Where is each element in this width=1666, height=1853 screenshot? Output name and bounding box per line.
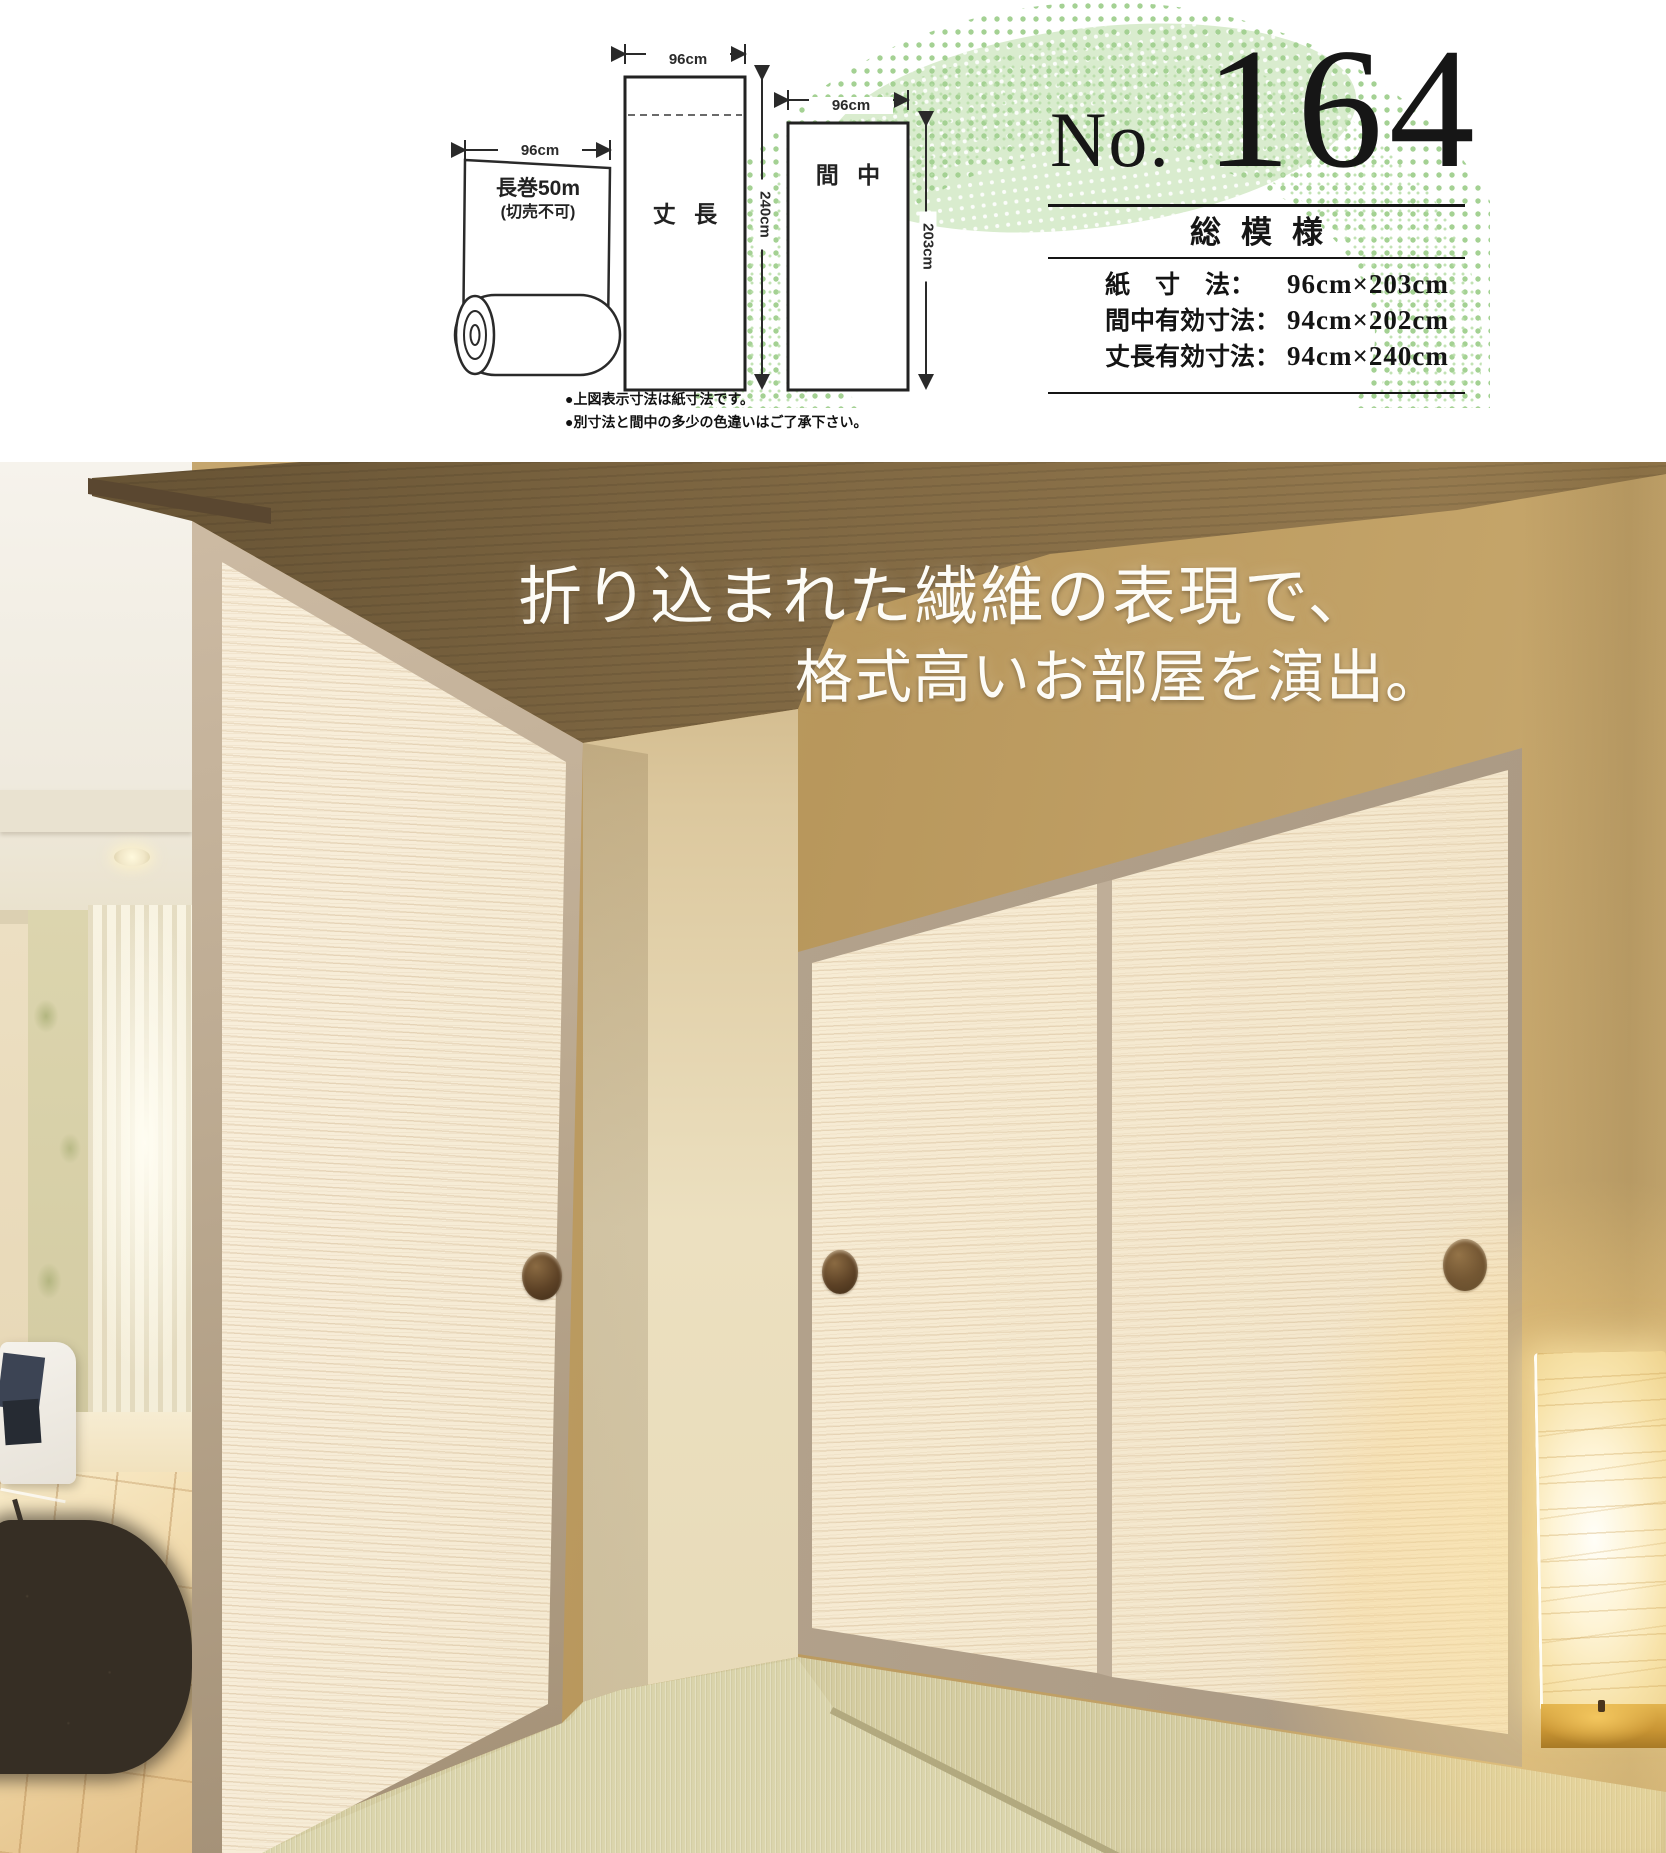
roll-caption: 長巻50m (切売不可) bbox=[468, 176, 608, 223]
diagram-note-2: ●別寸法と間中の多少の色違いはご了承下さい。 bbox=[565, 411, 867, 434]
takecho-width-label: 96cm bbox=[646, 51, 730, 68]
product-number-block: No.164 bbox=[1050, 14, 1466, 206]
takecho-height-label: 240cm bbox=[757, 180, 774, 250]
manaka-height-label: 203cm bbox=[920, 212, 937, 282]
rule-under-series bbox=[1048, 257, 1465, 259]
spec-label: 間中有効寸法： bbox=[1105, 304, 1287, 340]
manaka-name-label: 間 中 bbox=[787, 156, 909, 190]
header-section: 96cm 長巻50m (切売不可) 96cm 丈 長 240cm 96cm 間 … bbox=[0, 0, 1666, 462]
dimension-diagram bbox=[380, 30, 960, 450]
spec-table: 紙 寸 法： 96cm×203cm 間中有効寸法： 94cm×202cm 丈長有… bbox=[1105, 266, 1461, 374]
rule-under-number bbox=[1048, 204, 1465, 207]
roll-caption-line1: 長巻50m bbox=[468, 176, 608, 202]
series-name: 総模様 bbox=[1048, 210, 1465, 254]
spec-row-manaka: 間中有効寸法： 94cm×202cm bbox=[1105, 302, 1461, 338]
product-number: 164 bbox=[1205, 14, 1481, 204]
spec-row-paper: 紙 寸 法： 96cm×203cm bbox=[1105, 266, 1461, 302]
product-no-prefix: No. bbox=[1050, 96, 1171, 183]
catalog-page: 96cm 長巻50m (切売不可) 96cm 丈 長 240cm 96cm 間 … bbox=[0, 0, 1666, 1853]
room-photo: 折り込まれた繊維の表現で、 格式高いお部屋を演出。 bbox=[0, 462, 1666, 1853]
spec-value: 94cm×202cm bbox=[1287, 302, 1449, 338]
roll-caption-line2: (切売不可) bbox=[468, 202, 608, 223]
takecho-sheet-shape bbox=[625, 77, 745, 390]
spec-row-takecho: 丈長有効寸法： 94cm×240cm bbox=[1105, 338, 1461, 374]
manaka-width-label: 96cm bbox=[809, 97, 893, 114]
photo-caption-line1: 折り込まれた繊維の表現で、 bbox=[518, 546, 1373, 638]
diagram-notes: ●上図表示寸法は紙寸法です。 ●別寸法と間中の多少の色違いはご了承下さい。 bbox=[565, 388, 867, 434]
rule-under-specs bbox=[1048, 392, 1465, 394]
spec-label: 丈長有効寸法： bbox=[1105, 340, 1287, 376]
photo-caption-line2: 格式高いお部屋を演出。 bbox=[795, 630, 1444, 714]
diagram-note-1: ●上図表示寸法は紙寸法です。 bbox=[565, 388, 867, 411]
roll-width-label: 96cm bbox=[498, 142, 582, 159]
lamp-knob bbox=[1598, 1700, 1605, 1712]
spec-value: 96cm×203cm bbox=[1287, 266, 1449, 302]
spec-label: 紙 寸 法： bbox=[1105, 268, 1287, 304]
takecho-name-label: 丈 長 bbox=[624, 195, 746, 229]
spec-value: 94cm×240cm bbox=[1287, 338, 1449, 374]
paper-floor-lamp bbox=[1534, 1351, 1666, 1711]
